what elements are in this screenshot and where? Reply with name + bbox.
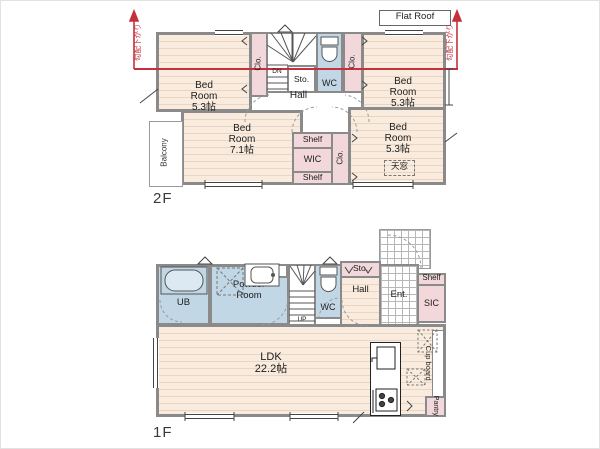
wc-1f-label: WC: [314, 302, 342, 312]
dimension-line: [445, 69, 453, 105]
up-label: UP: [294, 316, 310, 323]
closet-2f-left-label: Clo.: [255, 43, 264, 83]
pantry-label: Pantry: [431, 386, 439, 426]
dn-label: DN: [267, 68, 287, 75]
bedroom-2f-bottom-right-label: Bed Room 5.3帖: [363, 122, 433, 156]
unit-bath-label: UB: [156, 298, 211, 309]
slope-line: [134, 68, 458, 70]
floor-plan-canvas: Flat Roof 勾配下がり 勾配下がり Bed Room 5.3帖 Bed …: [0, 0, 600, 449]
wc-2f-label: WC: [316, 78, 343, 88]
closet-2f-right-label: Clo.: [349, 41, 358, 81]
skylight-label: 天窓: [384, 162, 415, 172]
wic-2f-label: WIC: [292, 154, 333, 164]
storage-2f-label: Sto.: [287, 75, 316, 85]
slope-label-left: 勾配下がり: [134, 16, 142, 68]
hall-2f-label: Hall: [276, 90, 321, 101]
balcony-label: Balcony: [161, 127, 170, 177]
unit-bath: [156, 264, 211, 326]
shelf-2f-bottom-label: Shelf: [292, 173, 333, 183]
shelf-2f-top-label: Shelf: [292, 135, 333, 145]
shoe-in-closet-label: SIC: [417, 298, 446, 308]
ds-label: DS: [262, 267, 288, 274]
shelf-1f-label: Shelf: [417, 274, 446, 283]
floor-label-2f: 2F: [153, 190, 173, 207]
entrance-label: Ent.: [379, 290, 419, 301]
closet-2f-mid-label: Clo.: [337, 137, 346, 177]
floor-label-1f: 1F: [153, 424, 173, 441]
powder-room-label: Powder Room: [214, 280, 284, 301]
ldk-label: LDK 22.2帖: [231, 351, 311, 376]
cupboard-label: Cup board: [424, 338, 432, 388]
bedroom-2f-top-left-label: Bed Room 5.3帖: [169, 80, 239, 114]
flat-roof-label: Flat Roof: [379, 12, 451, 23]
slope-label-right: 勾配下がり: [446, 16, 454, 68]
hall-1f-label: Hall: [340, 285, 381, 296]
bedroom-2f-top-right-label: Bed Room 5.3帖: [368, 76, 438, 110]
storage-1f-label: Sto.: [340, 264, 381, 274]
kitchen-counter: [370, 342, 401, 416]
entrance-porch: [379, 229, 431, 269]
bedroom-2f-bottom-left-label: Bed Room 7.1帖: [207, 123, 277, 157]
